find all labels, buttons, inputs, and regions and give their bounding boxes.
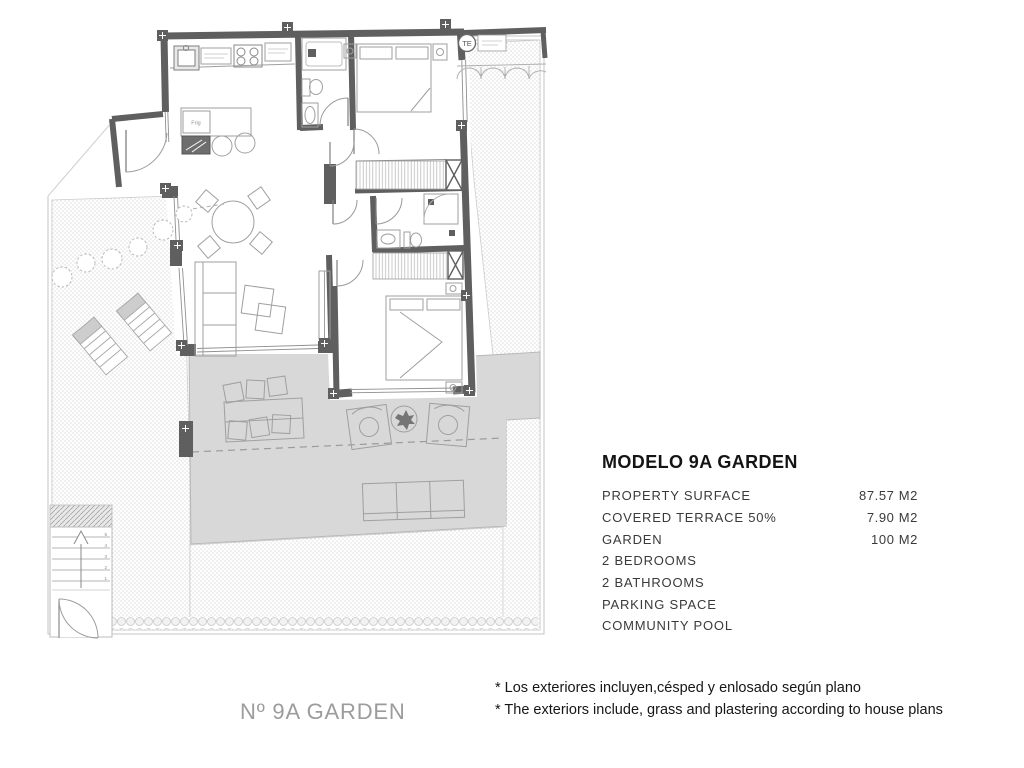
spec-row-parking: PARKING SPACE [602,593,918,615]
spec-row-bedrooms: 2 BEDROOMS [602,550,918,572]
footnote-spanish: * Los exteriores incluyen,césped y enlos… [495,678,943,700]
te-label: TE [462,39,472,48]
hedge-border [54,617,538,629]
oven [182,136,210,154]
spec-value: 100 M2 [871,532,918,547]
spec-label: COMMUNITY POOL [602,618,733,633]
footnotes: * Los exteriores incluyen,césped y enlos… [495,678,943,721]
spec-row-pool: COMMUNITY POOL [602,615,918,637]
shaft-1 [446,160,462,190]
spec-row-property-surface: PROPERTY SURFACE 87.57 M2 [602,485,918,507]
shaft-2 [448,251,463,279]
stairs: 5 4 3 2 1 [50,505,112,638]
fridge-label: Frig [191,121,200,127]
footnote-english: * The exteriors include, grass and plast… [495,700,943,722]
kitchen-sink [174,46,199,71]
spec-value: 7.90 M2 [867,510,918,525]
plan-title: MODELO 9A GARDEN [602,452,918,473]
spec-row-covered-terrace: COVERED TERRACE 50% 7.90 M2 [602,507,918,529]
svg-text:5: 5 [104,532,107,537]
svg-text:4: 4 [104,543,107,548]
floor-plan-drawing: 5 4 3 2 1 TE [0,0,600,680]
spec-label: PROPERTY SURFACE [602,488,751,503]
wardrobe-2 [373,253,448,279]
spec-label: GARDEN [602,532,662,547]
svg-text:1: 1 [104,576,107,581]
spec-row-bathrooms: 2 BATHROOMS [602,572,918,594]
spec-label: PARKING SPACE [602,597,717,612]
spec-value: 87.57 M2 [859,488,918,503]
svg-text:3: 3 [104,554,107,559]
unit-label: Nº 9A GARDEN [240,699,406,725]
page: 5 4 3 2 1 TE [0,0,1024,768]
spec-label: COVERED TERRACE 50% [602,510,777,525]
spec-label: 2 BEDROOMS [602,553,697,568]
spec-row-garden: GARDEN 100 M2 [602,528,918,550]
spec-label: 2 BATHROOMS [602,575,704,590]
svg-text:2: 2 [104,565,107,570]
spec-panel: MODELO 9A GARDEN PROPERTY SURFACE 87.57 … [602,452,918,637]
meter-box [478,35,506,51]
wardrobe-1 [356,161,446,189]
